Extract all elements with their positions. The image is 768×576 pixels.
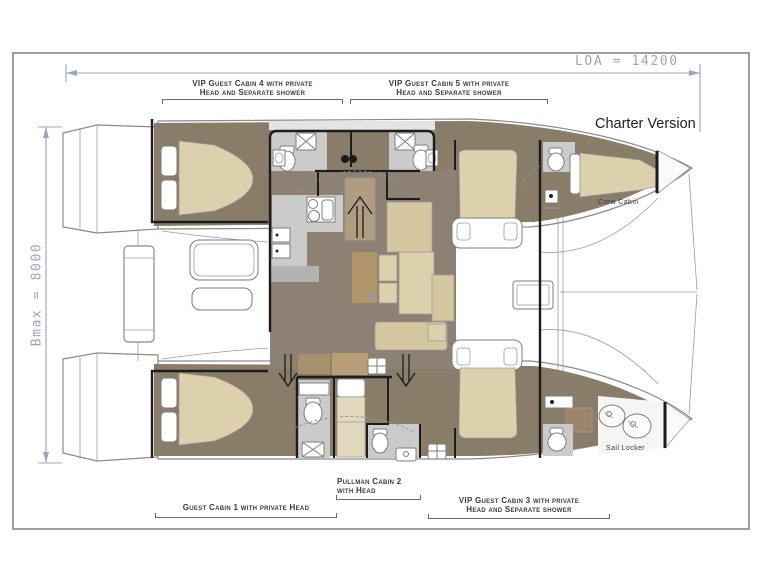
cabin1-label: Guest Cabin 1 with private Head (155, 504, 337, 513)
cabin3-label: VIP Guest Cabin 3 with private Head and … (428, 497, 610, 514)
cabin2-label: Pullman Cabin 2 with Head (337, 478, 427, 495)
loa-dimension-label: LOA = 14200 (575, 54, 679, 69)
hatch-icon (428, 444, 446, 459)
cooktop-icon (307, 197, 335, 222)
bmax-dimension-label: Bmax = 8000 (30, 235, 45, 355)
cabin4-bracket (162, 99, 343, 104)
cabin4-label: VIP Guest Cabin 4 with private Head and … (162, 80, 343, 97)
sail-locker-label: Sail Locker (606, 445, 676, 454)
pillow (161, 412, 177, 442)
toilet-icon (548, 148, 564, 171)
cabin5-bed (452, 150, 522, 248)
cabin5-bracket (350, 99, 548, 104)
toilet-icon (548, 428, 566, 451)
pullman-pillow (337, 379, 365, 397)
sofa (399, 252, 434, 314)
door-hinge-icon (341, 155, 349, 163)
pillow (570, 154, 580, 194)
cabin1-bracket (155, 513, 337, 518)
pullman-mattress (337, 397, 365, 457)
sink-icon (545, 190, 558, 203)
toilet-icon (372, 429, 388, 453)
pillow (161, 146, 177, 176)
door-hinge-icon (349, 155, 357, 163)
pillow (161, 180, 177, 210)
stern-steps (63, 125, 158, 461)
shower-icon (302, 442, 324, 457)
sink-icon (273, 150, 285, 166)
aft-cockpit (162, 231, 268, 359)
cabin2-bracket (336, 495, 421, 500)
toilet-icon (304, 398, 322, 424)
cockpit-table (190, 240, 258, 280)
cabin5-label: VIP Guest Cabin 5 with private Head and … (350, 80, 548, 97)
sink-icon (545, 396, 573, 408)
bow-tip-starboard (657, 150, 690, 194)
cabin3-bracket (428, 514, 610, 519)
version-title: Charter Version (595, 116, 696, 132)
stairs (345, 178, 375, 240)
shower-icon (396, 448, 416, 461)
cockpit-bench (192, 288, 252, 310)
cabin3-bed (452, 340, 522, 438)
floorplan-page: LOA = 14200 Bmax = 8000 Charter Version … (0, 0, 768, 576)
lounge-seat (387, 202, 432, 252)
sink-icon (426, 150, 438, 166)
crew-cabin-label: Crew Cabin (598, 199, 668, 208)
pillow (161, 378, 177, 408)
hatch-icon (368, 358, 386, 374)
